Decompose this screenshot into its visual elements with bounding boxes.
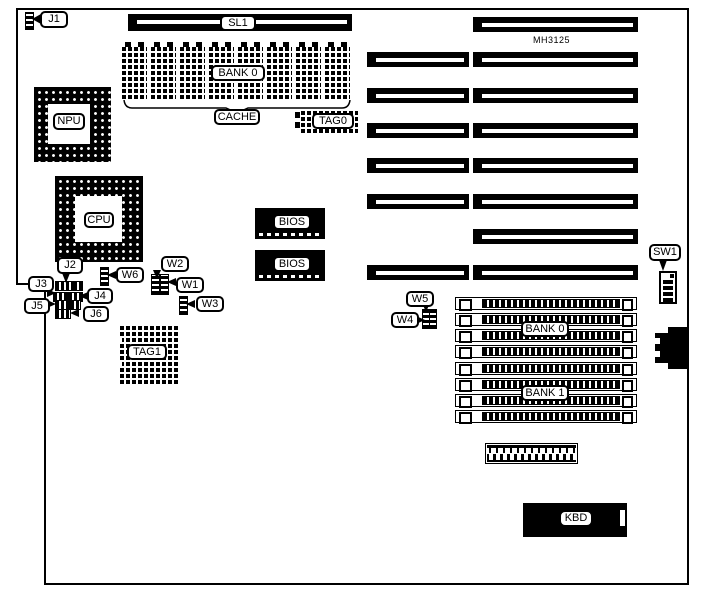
simm-latch	[622, 364, 633, 376]
slot-contact-stripe	[376, 129, 464, 133]
callout-w1-pointer	[167, 278, 176, 286]
callout-j5: J5	[24, 298, 50, 314]
expansion-slot	[367, 123, 469, 138]
chip-notch	[328, 42, 334, 47]
simm-latch	[622, 396, 633, 408]
simm-latch	[459, 315, 472, 327]
expansion-slot	[473, 17, 638, 32]
chip-notch	[225, 42, 231, 47]
expansion-slot	[367, 88, 469, 103]
bios-chip-pins	[259, 233, 321, 236]
board-outline-left-lower	[44, 283, 46, 585]
tag1-chip-notch	[116, 360, 122, 368]
power-connector-pins-top	[487, 445, 576, 453]
board-model-text: MH3125	[533, 35, 570, 45]
expansion-slot	[367, 158, 469, 173]
slot-sl1-label: SL1	[220, 15, 256, 31]
jumper-header-j2b	[73, 281, 83, 291]
keyboard-din-connector	[668, 327, 688, 369]
chip-notch	[154, 42, 160, 47]
tag1-chip-notch	[116, 336, 122, 344]
cache-label: CACHE	[214, 109, 260, 125]
slot-contact-stripe	[482, 200, 633, 204]
callout-j3: J3	[28, 276, 54, 292]
simm-latch	[459, 347, 472, 359]
tag1-label: TAG1	[127, 344, 167, 360]
callout-w3: W3	[196, 296, 224, 312]
simm-contacts	[482, 347, 620, 356]
simm-latch	[459, 299, 472, 311]
expansion-slot	[473, 52, 638, 67]
expansion-slot	[367, 52, 469, 67]
chip-notch	[125, 42, 131, 47]
chip-notch	[283, 42, 289, 47]
simm-bank0-label: BANK 0	[521, 321, 569, 337]
callout-w2: W2	[161, 256, 189, 272]
cache-chip	[325, 47, 350, 99]
expansion-slot	[367, 265, 469, 280]
simm-latch	[459, 331, 472, 343]
slot-contact-stripe	[376, 164, 464, 168]
chip-notch	[270, 42, 276, 47]
expansion-slot	[473, 88, 638, 103]
expansion-slot	[473, 265, 638, 280]
power-connector-pins-bottom	[487, 454, 576, 462]
slot-contact-stripe	[482, 94, 633, 98]
expansion-slot	[473, 194, 638, 209]
simm-socket-row	[455, 362, 637, 375]
kbd-label: KBD	[560, 511, 592, 526]
cache-chip	[296, 47, 321, 99]
board-outline-top	[16, 8, 689, 10]
chip-notch	[312, 42, 318, 47]
slot-contact-stripe	[376, 94, 464, 98]
bios-chip-pins	[259, 275, 321, 278]
cache-chip	[122, 47, 147, 99]
simm-latch	[622, 412, 633, 424]
simm-contacts	[482, 412, 620, 421]
cpu-label: CPU	[84, 212, 114, 228]
callout-sw1: SW1	[649, 244, 681, 261]
expansion-slot	[473, 158, 638, 173]
chip-notch	[299, 42, 305, 47]
callout-w4: W4	[391, 312, 419, 328]
cache-chip	[151, 47, 176, 99]
simm-latch	[459, 396, 472, 408]
board-outline-right	[687, 8, 689, 585]
kbd-chip-notch	[620, 510, 625, 526]
simm-latch	[622, 331, 633, 343]
motherboard-diagram: J1 SL1 MH3125 BANK 0 CACHE TAG0 NPU	[0, 0, 709, 596]
simm-bank1-label: BANK 1	[521, 385, 569, 401]
simm-socket-row	[455, 345, 637, 358]
expansion-slot	[473, 123, 638, 138]
callout-j2: J2	[57, 257, 83, 274]
tag0-label: TAG0	[312, 113, 354, 129]
jumper-header-j6	[55, 309, 71, 319]
cache-bank0-label: BANK 0	[211, 65, 265, 81]
chip-notch	[183, 42, 189, 47]
din-notch	[655, 338, 660, 344]
callout-j6: J6	[83, 306, 109, 322]
board-outline-left-upper	[16, 8, 18, 285]
callout-j2-pointer	[62, 273, 70, 283]
callout-w2-pointer	[153, 270, 161, 279]
slot-contact-stripe	[376, 58, 464, 62]
callout-j4: J4	[87, 288, 113, 304]
expansion-slot	[367, 194, 469, 209]
bios-top-label: BIOS	[273, 214, 311, 230]
slot-contact-stripe	[482, 129, 633, 133]
chip-notch	[167, 42, 173, 47]
npu-label: NPU	[53, 113, 85, 130]
simm-latch	[622, 347, 633, 359]
slot-contact-stripe	[376, 200, 464, 204]
slot-contact-stripe	[482, 23, 633, 27]
dip-switch-indicator	[670, 274, 674, 278]
simm-latch	[459, 412, 472, 424]
din-notch	[655, 351, 660, 357]
simm-latch	[622, 299, 633, 311]
cache-chip	[180, 47, 205, 99]
callout-w3-pointer	[186, 300, 195, 308]
simm-latch	[459, 380, 472, 392]
simm-contacts	[482, 364, 620, 373]
dip-switch-sw1	[659, 271, 677, 304]
board-outline-bottom	[44, 583, 689, 585]
slot-contact-stripe	[482, 58, 633, 62]
dip-switch-segment	[663, 292, 673, 296]
slot-contact-stripe	[482, 235, 633, 239]
simm-contacts	[482, 299, 620, 308]
dip-switch-segment	[663, 280, 673, 284]
expansion-slot	[473, 229, 638, 244]
tag0-chip-pin	[295, 122, 300, 128]
simm-socket-row	[455, 297, 637, 310]
simm-socket-row	[455, 410, 637, 423]
callout-w6-pointer	[107, 271, 116, 279]
callout-w6: W6	[116, 267, 144, 283]
callout-sw1-pointer	[659, 260, 667, 271]
dip-switch-segment	[663, 286, 673, 290]
slot-contact-stripe	[482, 271, 633, 275]
chip-notch	[241, 42, 247, 47]
chip-notch	[212, 42, 218, 47]
chip-notch	[196, 42, 202, 47]
power-connector	[485, 443, 578, 464]
callout-w1: W1	[176, 277, 204, 293]
chip-notch	[254, 42, 260, 47]
dip-switch-segment	[663, 298, 673, 302]
simm-latch	[622, 380, 633, 392]
slot-contact-stripe	[482, 164, 633, 168]
callout-j1: J1	[40, 11, 68, 28]
simm-latch	[459, 364, 472, 376]
cache-chip	[267, 47, 292, 99]
slot-contact-stripe	[376, 271, 464, 275]
simm-latch	[622, 315, 633, 327]
chip-notch	[138, 42, 144, 47]
jumper-w5	[429, 309, 437, 329]
callout-j6-pointer	[70, 309, 79, 317]
callout-w5: W5	[406, 291, 434, 307]
bios-bottom-label: BIOS	[273, 256, 311, 272]
chip-notch	[341, 42, 347, 47]
